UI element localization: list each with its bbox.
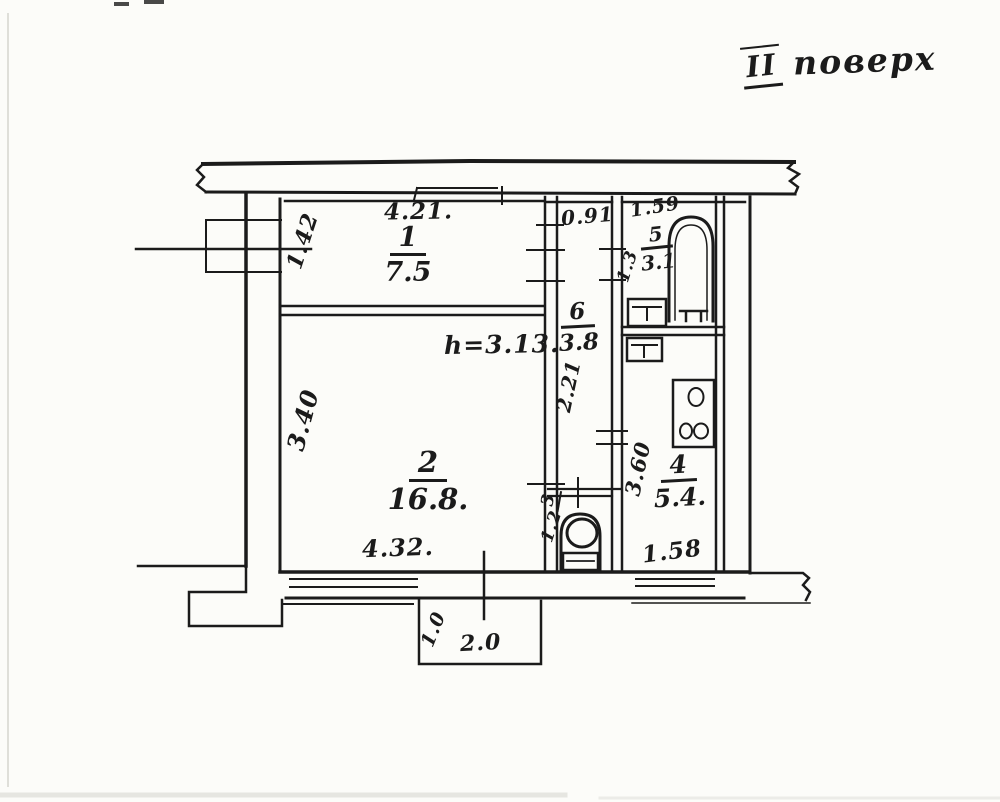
top-wall	[197, 161, 799, 194]
dim-room1-width: 4.21.	[384, 199, 453, 223]
dim-balcony-width: 2.0	[459, 631, 501, 655]
floor-plan-drawing	[0, 0, 1000, 802]
stove-icon	[673, 380, 714, 447]
washbasin-icon	[628, 299, 666, 326]
toilet-icon	[561, 514, 600, 571]
floor-title: IIповерх	[741, 39, 937, 89]
room6-number: 6	[560, 299, 595, 329]
sink-icon	[627, 338, 662, 361]
floor-title-word: поверх	[792, 39, 937, 83]
room4-area: 5.4.	[644, 483, 715, 512]
right-wall	[750, 197, 810, 600]
floor-plan-page: IIповерх 4.21. 1 7.5 1.42 h=3.13. 0.91 6…	[0, 0, 1000, 802]
scan-artifacts	[0, 2, 1000, 798]
ceiling-height-note: h=3.13.	[444, 331, 560, 358]
room1-room2-wall	[280, 306, 544, 315]
room1-area: 7.5	[366, 259, 450, 286]
room2-area: 16.8.	[382, 485, 474, 514]
dim-room2-width: 4.32.	[362, 535, 435, 561]
room5-number: 5	[639, 222, 673, 250]
room6-label: 6 3.8	[547, 298, 610, 355]
room2-number: 2	[409, 448, 447, 482]
bottom-left-corner	[138, 566, 282, 626]
dim-kitchen-width: 1.58	[641, 536, 703, 566]
room1-label: 1 7.5	[366, 224, 450, 286]
room6-area: 3.8	[548, 329, 609, 355]
room4-label: 4 5.4.	[643, 450, 716, 512]
room4-number: 4	[660, 451, 697, 483]
floor-title-numeral: II	[740, 44, 783, 90]
room2-label: 2 16.8.	[382, 448, 474, 514]
room1-number: 1	[390, 224, 427, 256]
dim-hall-width: 0.91	[560, 204, 614, 229]
